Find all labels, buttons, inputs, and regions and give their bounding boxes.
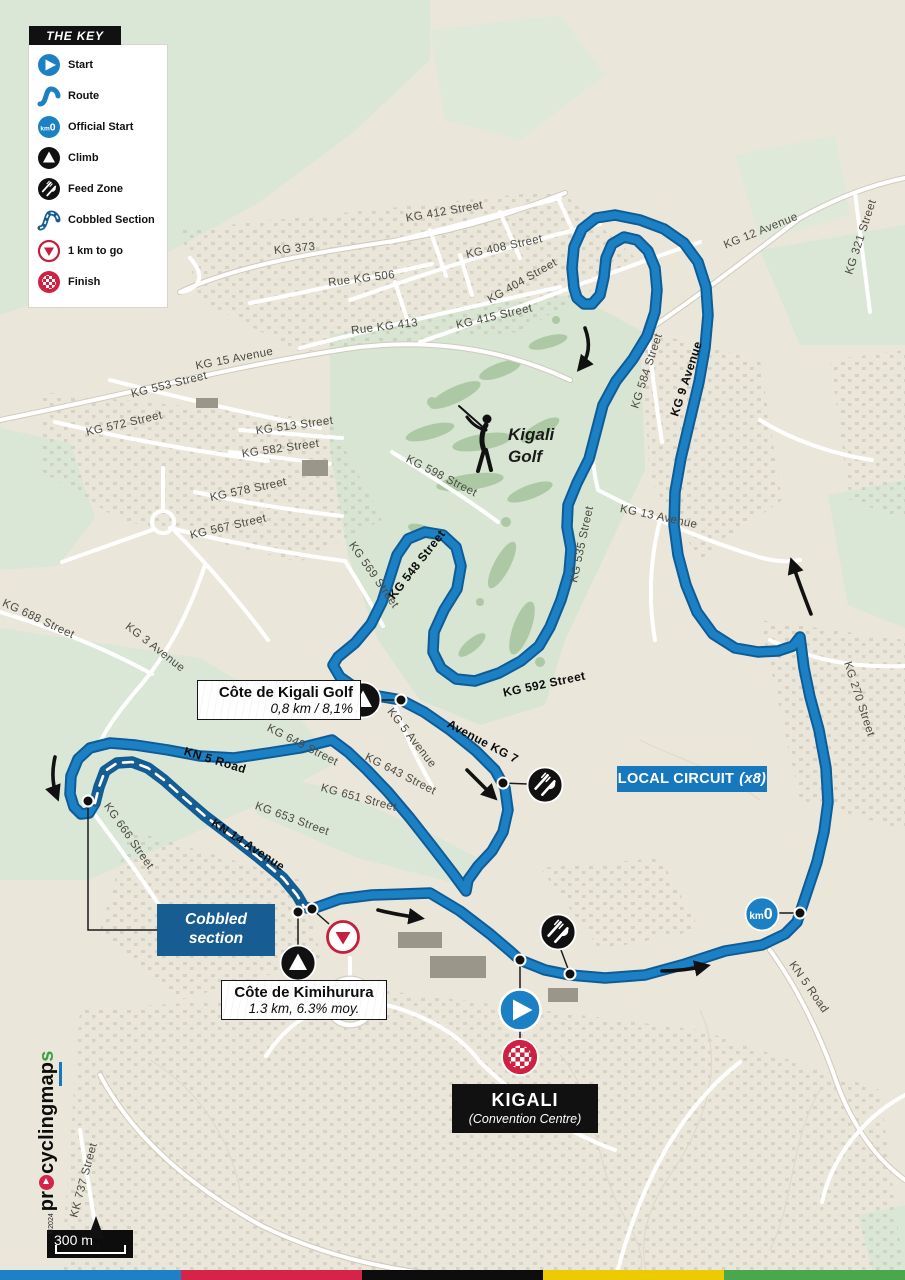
north-label: N	[86, 1239, 106, 1253]
bar-red	[181, 1270, 362, 1280]
climb-label-kimihurura: Côte de Kimihurura 1.3 km, 6.3% moy.	[221, 980, 387, 1020]
legend-item-feed-zone: Feed Zone	[37, 177, 161, 201]
logo-text: pr	[36, 1191, 59, 1211]
golf-course-label-line2: Golf	[508, 447, 544, 466]
route-icon	[37, 84, 61, 108]
local-circuit-badge: LOCAL CIRCUIT (x8)	[617, 766, 767, 792]
local-circuit-label: LOCAL CIRCUIT	[618, 771, 734, 787]
legend-item-label: Official Start	[68, 121, 133, 133]
km0-icon: km0	[37, 115, 61, 139]
climb-icon	[37, 146, 61, 170]
one-km-to-go-marker	[328, 922, 359, 953]
climb-stats: 0,8 km / 8,1%	[205, 701, 353, 716]
logo-text: cyclingm	[36, 1086, 59, 1174]
climb-label-kigali-golf: Côte de Kigali Golf 0,8 km / 8,1%	[197, 680, 361, 720]
one-km-icon	[37, 239, 61, 263]
climb-stats: 1.3 km, 6.3% moy.	[229, 1001, 379, 1016]
climb-marker-kimihurura	[281, 946, 316, 981]
north-arrow-icon	[88, 1216, 104, 1238]
feed-zone-marker-2	[541, 915, 576, 950]
finish-icon	[37, 270, 61, 294]
legend-item-label: Cobbled Section	[68, 214, 155, 226]
feed-zone-marker-1	[528, 768, 563, 803]
km0-marker: km0	[746, 898, 779, 931]
legend-item-start: Start	[37, 53, 161, 77]
legend-item-cobbled: Cobbled Section	[37, 208, 161, 232]
logo-text-green: s	[36, 1050, 59, 1061]
legend-item-climb: Climb	[37, 146, 161, 170]
bar-blue	[0, 1270, 181, 1280]
legend-item-label: 1 km to go	[68, 245, 123, 257]
north-indicator: N	[86, 1216, 106, 1253]
legend-item-label: Route	[68, 90, 99, 102]
golf-course-label-line1: Kigali	[508, 425, 556, 444]
route-map: km0 KG 412 Street KG 373 KG 408 Street R…	[0, 0, 905, 1280]
start-icon	[37, 53, 61, 77]
legend-title: THE KEY	[29, 26, 121, 45]
legend-item-official-start: km0 Official Start	[37, 115, 161, 139]
legend-panel: Start Route km0 Official Start Climb Fee…	[29, 45, 167, 307]
cobbled-line2: section	[189, 930, 243, 949]
logo-text-underlined: ap	[36, 1062, 59, 1086]
start-marker	[500, 990, 541, 1031]
bar-green	[724, 1270, 905, 1280]
legend-item-finish: Finish	[37, 270, 161, 294]
legend-item-label: Climb	[68, 152, 99, 164]
climb-title: Côte de Kimihurura	[229, 984, 379, 1001]
feed-zone-icon	[37, 177, 61, 201]
climb-title: Côte de Kigali Golf	[205, 684, 353, 701]
bar-yellow	[543, 1270, 724, 1280]
logo-play-icon	[39, 1175, 54, 1190]
cobbled-icon	[37, 208, 61, 232]
start-city: KIGALI	[456, 1090, 594, 1111]
legend-item-route: Route	[37, 84, 161, 108]
legend-item-label: Feed Zone	[68, 183, 123, 195]
cobbled-section-badge: Cobbled section	[157, 904, 275, 956]
finish-marker	[502, 1039, 538, 1075]
start-location-badge: KIGALI (Convention Centre)	[452, 1084, 598, 1133]
local-circuit-reps: (x8)	[739, 771, 766, 787]
logo-copyright: ©2024	[48, 1213, 55, 1234]
bar-black	[362, 1270, 543, 1280]
procyclingmaps-logo: ©2024prcyclingmaps	[36, 1050, 59, 1234]
start-venue: (Convention Centre)	[456, 1112, 594, 1126]
legend-item-label: Finish	[68, 276, 100, 288]
cobbled-line1: Cobbled	[185, 911, 247, 930]
legend-item-label: Start	[68, 59, 93, 71]
footer-color-bar	[0, 1270, 905, 1280]
legend-item-one-km: 1 km to go	[37, 239, 161, 263]
